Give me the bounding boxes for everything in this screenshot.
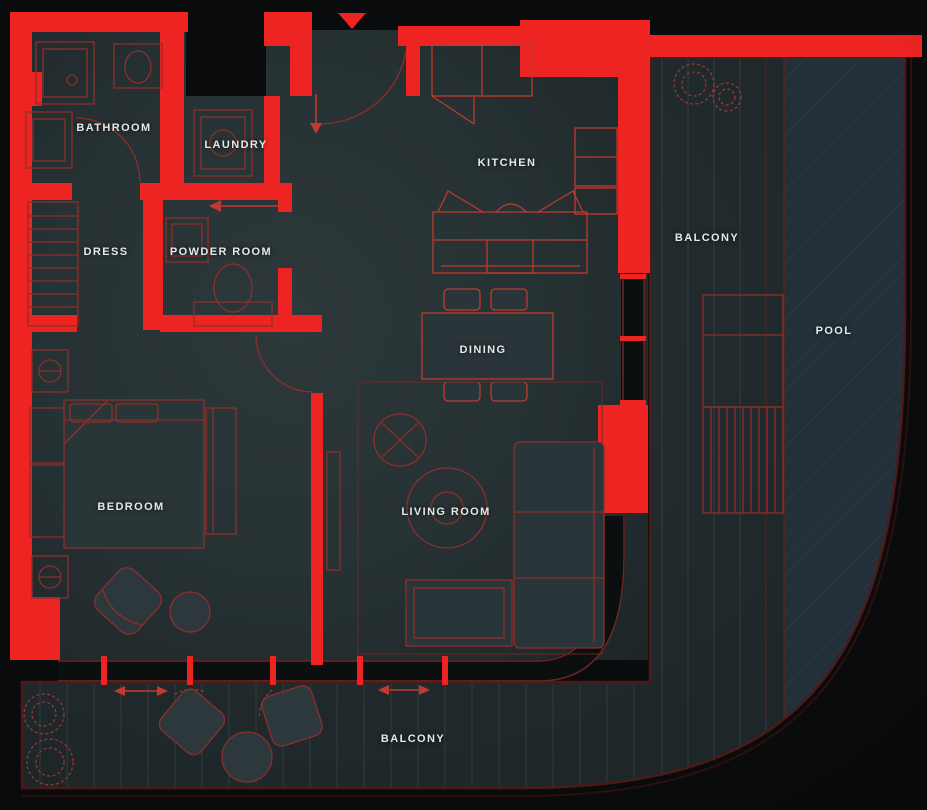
room-label-balcony-right: BALCONY <box>675 232 739 244</box>
room-label-balcony-bottom: BALCONY <box>381 733 445 745</box>
room-label-dining: DINING <box>460 344 507 356</box>
room-label-living-room: LIVING ROOM <box>401 506 490 518</box>
room-label-dress: DRESS <box>84 246 129 258</box>
room-label-pool: POOL <box>816 325 853 337</box>
room-label-powder-room: POWDER ROOM <box>170 246 272 258</box>
room-label-bedroom: BEDROOM <box>97 501 164 513</box>
room-label-bathroom: BATHROOM <box>76 122 151 134</box>
room-label-kitchen: KITCHEN <box>478 157 537 169</box>
room-labels: BATHROOM LAUNDRY KITCHEN DRESS POWDER RO… <box>0 0 927 810</box>
floorplan-canvas: BATHROOM LAUNDRY KITCHEN DRESS POWDER RO… <box>0 0 927 810</box>
room-label-laundry: LAUNDRY <box>204 139 267 151</box>
